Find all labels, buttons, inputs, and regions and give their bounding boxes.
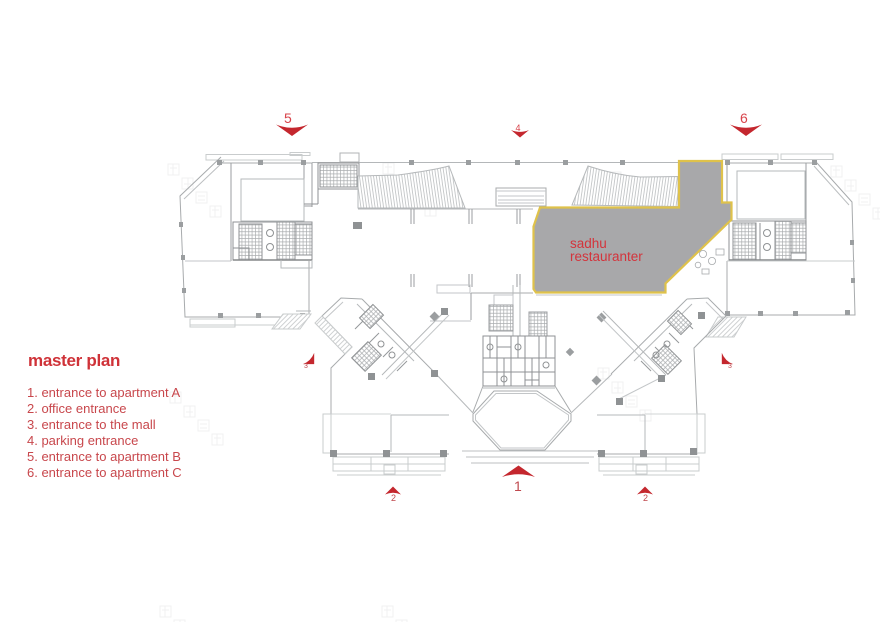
svg-text:3: 3 xyxy=(728,363,732,370)
svg-text:5: 5 xyxy=(284,110,292,126)
svg-text:1. entrance to apartment A: 1. entrance to apartment A xyxy=(27,385,181,400)
svg-text:1: 1 xyxy=(514,478,522,494)
svg-text:master plan: master plan xyxy=(28,351,120,370)
svg-text:4. parking entrance: 4. parking entrance xyxy=(27,433,138,448)
svg-text:4: 4 xyxy=(516,123,521,133)
svg-text:2: 2 xyxy=(643,493,648,503)
svg-text:6: 6 xyxy=(740,110,748,126)
svg-text:2: 2 xyxy=(391,493,396,503)
svg-text:2. office entrance: 2. office entrance xyxy=(27,401,127,416)
svg-text:restauranter: restauranter xyxy=(570,249,643,264)
svg-text:5. entrance to apartment B: 5. entrance to apartment B xyxy=(27,449,181,464)
svg-text:3: 3 xyxy=(304,363,308,370)
svg-text:6. entrance to apartment C: 6. entrance to apartment C xyxy=(27,465,182,480)
svg-text:3. entrance to the mall: 3. entrance to the mall xyxy=(27,417,156,432)
